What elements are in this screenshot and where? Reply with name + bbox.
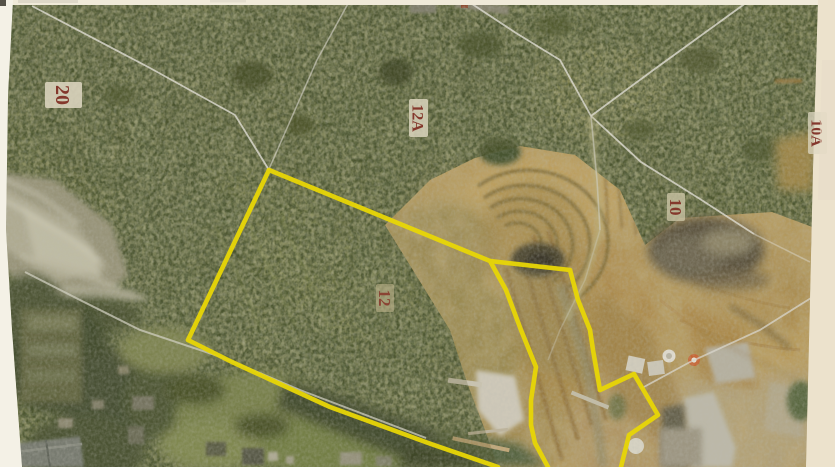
svg-text:20: 20 (51, 85, 73, 105)
svg-text:12: 12 (375, 290, 394, 307)
svg-text:12A: 12A (409, 104, 426, 132)
svg-text:10: 10 (666, 199, 685, 216)
